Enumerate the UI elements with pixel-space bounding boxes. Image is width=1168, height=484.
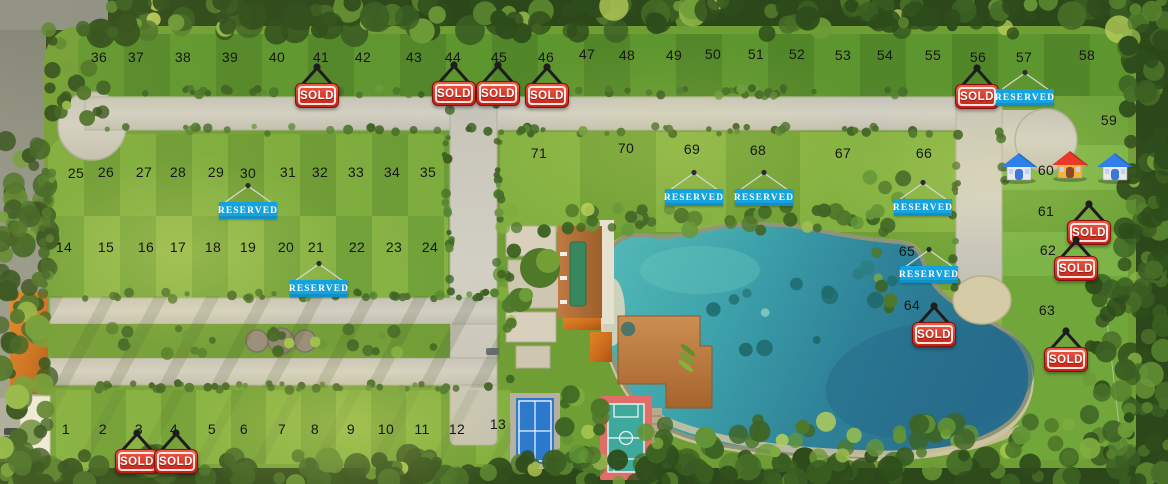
sold-sign-lot-46: SOLD xyxy=(524,57,570,109)
reserved-sign-lot-68: RESERVED xyxy=(735,168,793,210)
sold-sign-lot-62: SOLD xyxy=(1053,230,1099,282)
reserved-sign-lot-65: RESERVED xyxy=(900,245,958,287)
reserved-sign-lot-69: RESERVED xyxy=(665,168,723,210)
reserved-sign-lot-66: RESERVED xyxy=(894,178,952,220)
sold-sign-lot-4: SOLD xyxy=(153,423,199,475)
reserved-sign-lot-30: RESERVED xyxy=(219,181,277,223)
blue-house-icon xyxy=(999,151,1039,190)
reserved-sign-lot-57: RESERVED xyxy=(996,68,1054,110)
red-house-icon xyxy=(1050,149,1090,188)
blue-house-icon xyxy=(1095,151,1135,190)
reserved-sign-lot-21: RESERVED xyxy=(290,259,348,301)
sold-sign-lot-63: SOLD xyxy=(1043,321,1089,373)
sold-sign-lot-64: SOLD xyxy=(911,296,957,348)
signs-layer: SOLDSOLDSOLDSOLDSOLDRESERVEDRESERVEDRESE… xyxy=(0,0,1168,484)
site-plan: 1234567891011121314151617181920212223242… xyxy=(0,0,1168,484)
sold-sign-lot-41: SOLD xyxy=(294,57,340,109)
sold-sign-lot-45: SOLD xyxy=(475,55,521,107)
sold-sign-lot-44: SOLD xyxy=(431,55,477,107)
sold-sign-lot-56: SOLD xyxy=(954,58,1000,110)
